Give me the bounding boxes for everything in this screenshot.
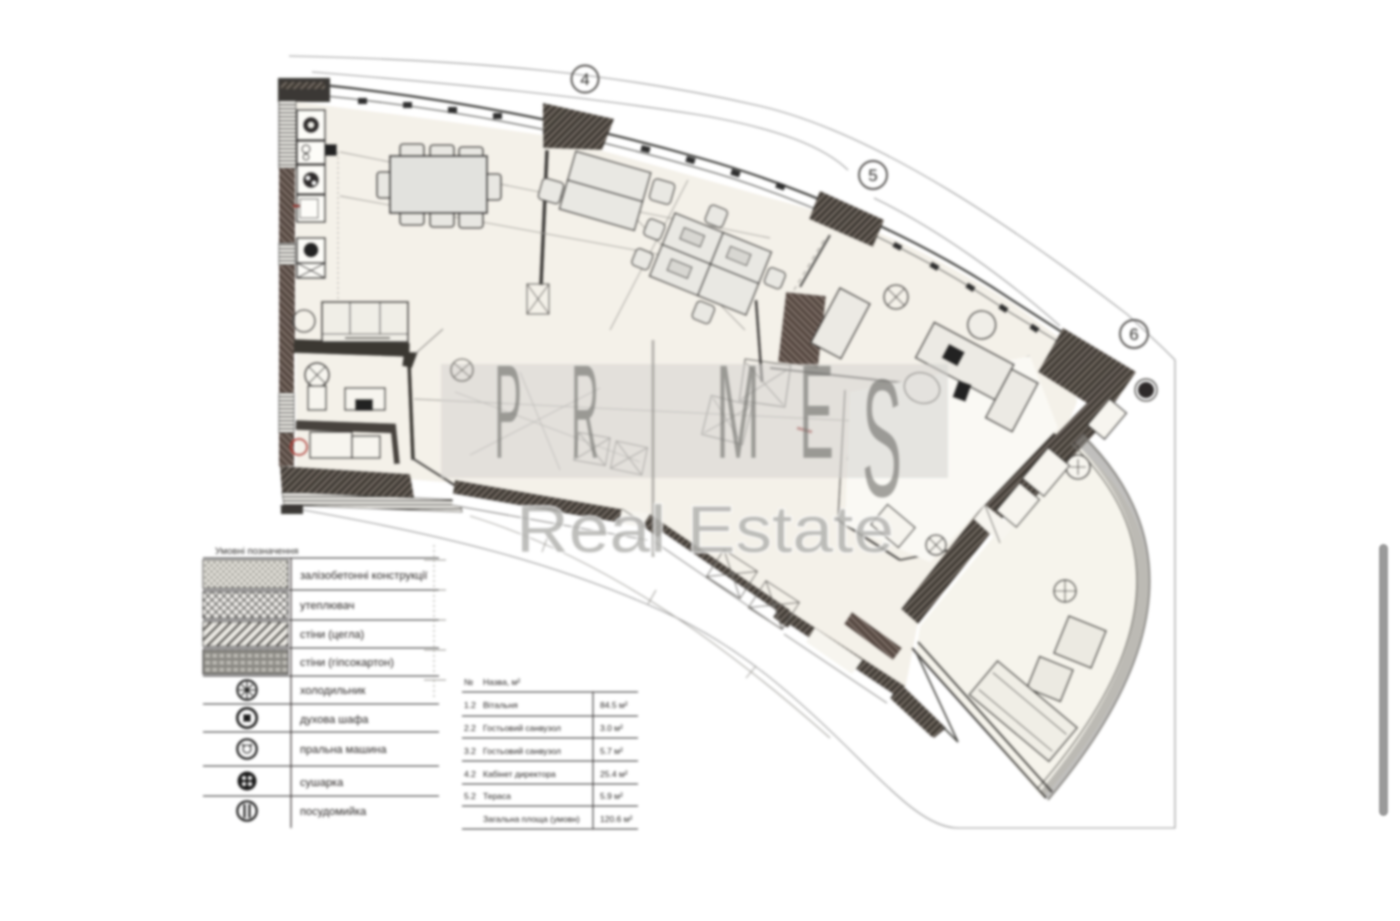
svg-text:Тераса: Тераса: [483, 791, 511, 801]
svg-text:Назва, м²: Назва, м²: [483, 677, 520, 687]
svg-text:духова шафа: духова шафа: [300, 714, 369, 726]
svg-text:залізобетонні конструкції: залізобетонні конструкції: [300, 570, 427, 582]
svg-text:M: M: [716, 338, 760, 487]
svg-text:Вітальня: Вітальня: [483, 700, 518, 710]
svg-text:Гостьовий санвузол: Гостьовий санвузол: [483, 746, 561, 756]
svg-text:6: 6: [1129, 325, 1138, 344]
svg-text:4: 4: [580, 70, 589, 89]
svg-text:E: E: [799, 338, 834, 487]
svg-text:120.6 м²: 120.6 м²: [600, 814, 632, 824]
svg-text:Гостьовий санвузол: Гостьовий санвузол: [483, 723, 561, 733]
svg-text:5.7 м²: 5.7 м²: [600, 746, 623, 756]
svg-text:5.9 м²: 5.9 м²: [600, 791, 623, 801]
svg-text:стіни (гіпсокартон): стіни (гіпсокартон): [300, 657, 394, 669]
svg-text:Real Estate: Real Estate: [516, 492, 894, 566]
svg-text:Умовні позначення: Умовні позначення: [215, 546, 298, 557]
svg-text:1.2: 1.2: [464, 700, 476, 710]
svg-text:посудомийка: посудомийка: [300, 806, 367, 818]
svg-text:холодильник: холодильник: [300, 685, 366, 697]
svg-text:84.5 м²: 84.5 м²: [600, 700, 628, 710]
svg-text:сушарка: сушарка: [300, 777, 344, 789]
svg-text:R: R: [571, 338, 599, 487]
svg-text:стіни (цегла): стіни (цегла): [300, 629, 364, 641]
svg-text:2.2: 2.2: [464, 723, 476, 733]
svg-text:3.0 м²: 3.0 м²: [600, 723, 623, 733]
svg-text:3.2: 3.2: [464, 746, 476, 756]
svg-text:утеплювач: утеплювач: [300, 600, 354, 612]
svg-text:5.2: 5.2: [464, 791, 476, 801]
svg-text:пральна машина: пральна машина: [300, 744, 387, 756]
svg-text:4.2: 4.2: [464, 769, 476, 779]
svg-text:5: 5: [868, 166, 877, 185]
svg-text:Загальна площа (умовн): Загальна площа (умовн): [483, 814, 580, 824]
svg-text:P: P: [494, 338, 522, 487]
svg-text:25.4 м²: 25.4 м²: [600, 769, 628, 779]
svg-text:№: №: [464, 677, 473, 687]
svg-text:Кабінет директора: Кабінет директора: [483, 769, 556, 779]
